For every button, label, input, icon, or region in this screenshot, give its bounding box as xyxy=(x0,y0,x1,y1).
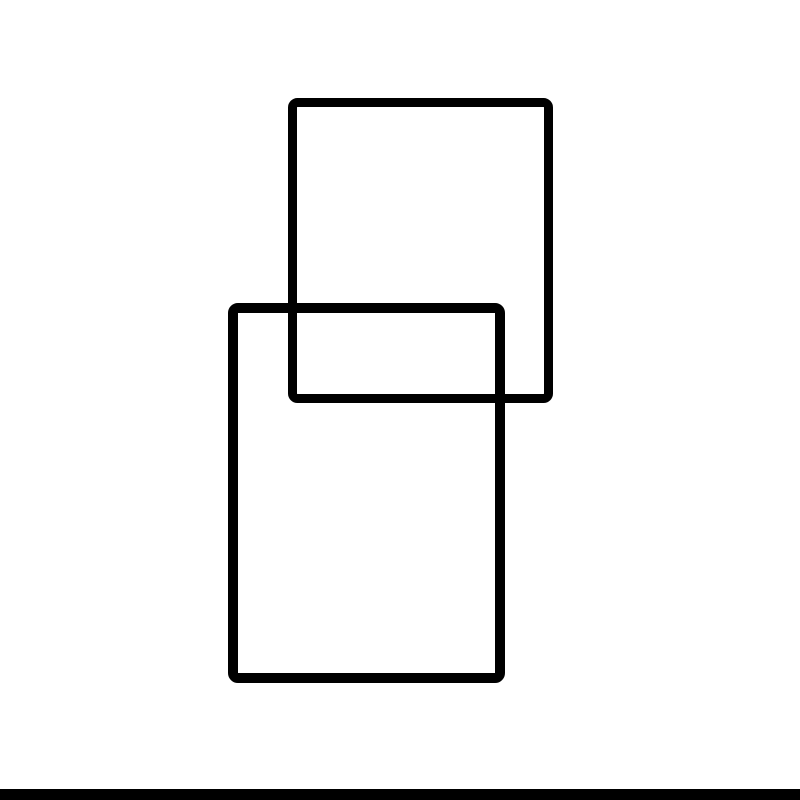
overlapping-rectangles-figure xyxy=(0,0,800,800)
upper-rectangle xyxy=(293,103,549,399)
lower-rectangle xyxy=(233,308,500,678)
bottom-black-bar xyxy=(0,789,800,800)
drawing-canvas xyxy=(0,0,800,800)
